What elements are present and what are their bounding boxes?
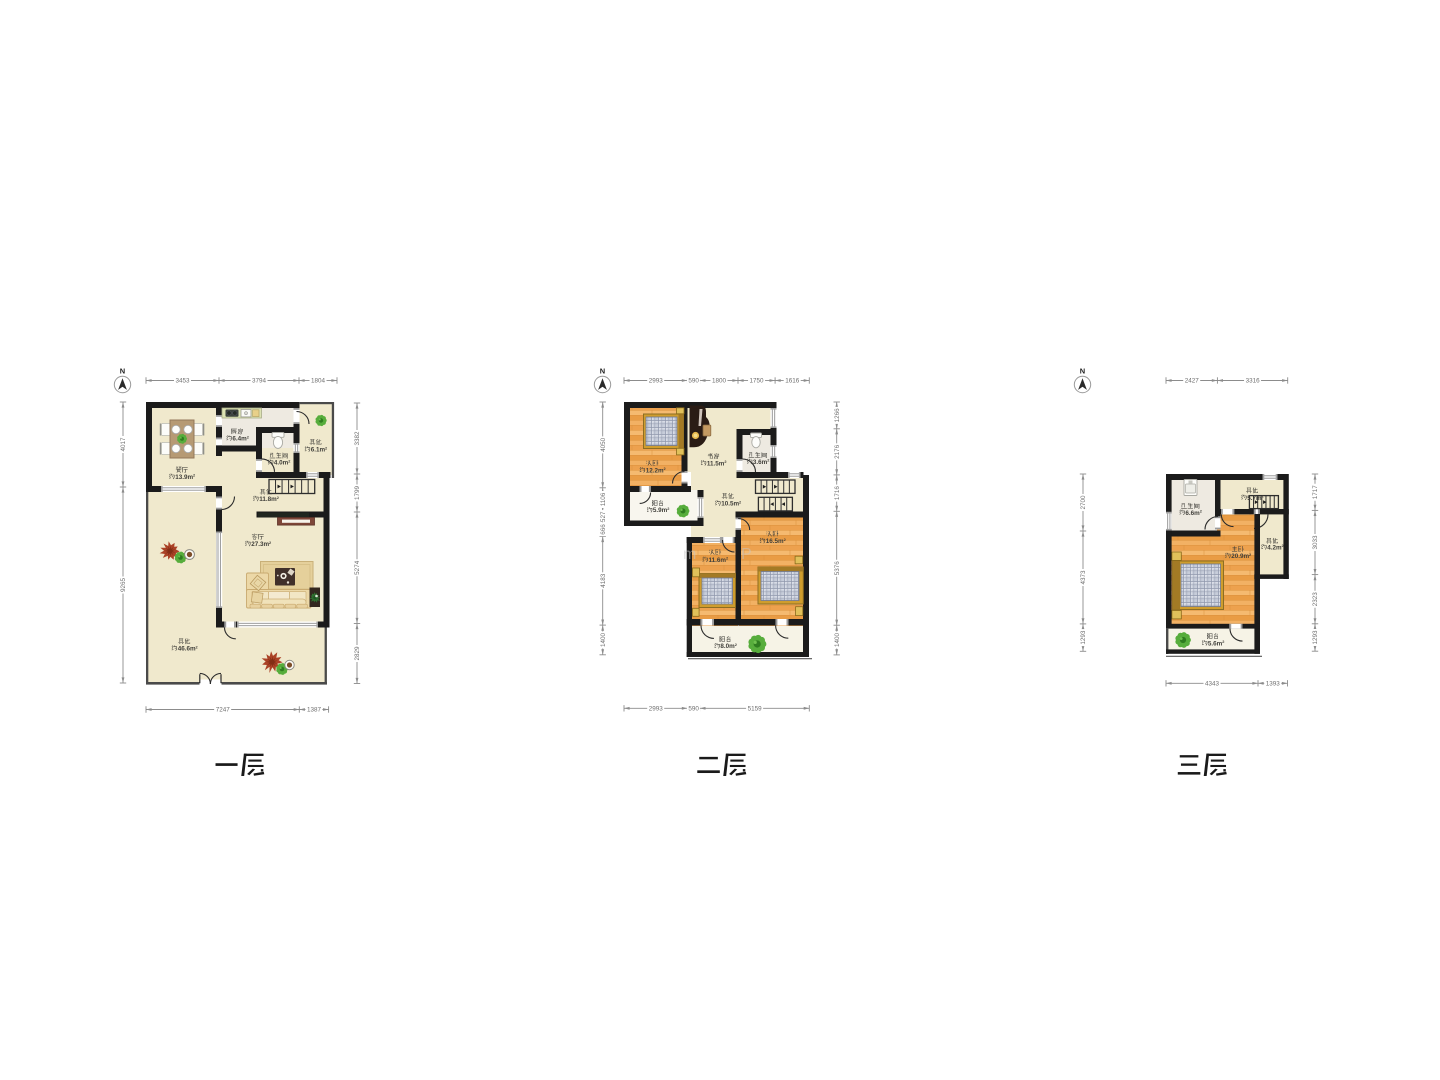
svg-text:666: 666 [600, 524, 607, 535]
svg-text:2993: 2993 [649, 378, 664, 385]
svg-text:4373: 4373 [1080, 570, 1087, 585]
svg-text:1106: 1106 [600, 492, 607, 506]
svg-text:12.2m2: 12.2m2 [646, 466, 667, 474]
svg-text:m: m [683, 546, 696, 563]
svg-text:N: N [120, 366, 125, 375]
svg-text:1400: 1400 [834, 633, 841, 648]
svg-text:9265: 9265 [120, 578, 127, 593]
svg-text:4050: 4050 [600, 437, 607, 452]
svg-text:20.9m2: 20.9m2 [1231, 552, 1252, 560]
svg-text:3794: 3794 [252, 378, 267, 385]
svg-text:1387: 1387 [307, 707, 322, 714]
svg-text:10.5m2: 10.5m2 [721, 499, 742, 507]
svg-text:1393: 1393 [1266, 681, 1281, 688]
svg-text:16.5m2: 16.5m2 [766, 537, 787, 545]
svg-text:11.6m2: 11.6m2 [709, 556, 730, 564]
svg-text:3033: 3033 [1312, 535, 1319, 550]
svg-text:2427: 2427 [1185, 378, 1200, 385]
svg-text:2993: 2993 [649, 706, 664, 713]
svg-text:11.8m2: 11.8m2 [259, 495, 280, 503]
svg-text:527: 527 [600, 511, 607, 522]
svg-text:1293: 1293 [1312, 630, 1319, 645]
svg-text:3382: 3382 [354, 431, 361, 446]
svg-text:1266: 1266 [834, 408, 841, 423]
svg-text:27.3m2: 27.3m2 [251, 540, 272, 548]
svg-text:1293: 1293 [1080, 630, 1087, 645]
svg-text:11.5m2: 11.5m2 [707, 459, 728, 467]
svg-text:3453: 3453 [175, 378, 190, 385]
svg-text:1717: 1717 [1312, 485, 1319, 500]
svg-text:N: N [1080, 366, 1085, 375]
svg-text:1750: 1750 [749, 378, 764, 385]
svg-text:590: 590 [688, 378, 699, 385]
svg-text:2323: 2323 [1312, 592, 1319, 607]
svg-text:P: P [741, 546, 752, 563]
svg-text:7247: 7247 [216, 707, 231, 714]
svg-text:5376: 5376 [834, 561, 841, 576]
svg-text:4017: 4017 [120, 437, 127, 452]
svg-text:3316: 3316 [1246, 378, 1261, 385]
svg-text:46.6m2: 46.6m2 [178, 644, 199, 652]
svg-text:N: N [600, 366, 605, 375]
svg-text:5274: 5274 [354, 560, 361, 575]
svg-text:1400: 1400 [600, 633, 607, 648]
svg-text:13.9m2: 13.9m2 [175, 473, 196, 481]
svg-text:2700: 2700 [1080, 495, 1087, 510]
svg-text:1804: 1804 [311, 378, 326, 385]
svg-text:1800: 1800 [712, 378, 727, 385]
svg-text:5159: 5159 [748, 706, 763, 713]
svg-text:4343: 4343 [1205, 681, 1220, 688]
svg-text:1799: 1799 [354, 486, 361, 501]
svg-text:1716: 1716 [834, 486, 841, 501]
svg-text:2829: 2829 [354, 646, 361, 661]
svg-text:2176: 2176 [834, 444, 841, 459]
svg-text:1616: 1616 [785, 378, 800, 385]
svg-text:590: 590 [688, 706, 699, 713]
svg-text:4183: 4183 [600, 573, 607, 588]
